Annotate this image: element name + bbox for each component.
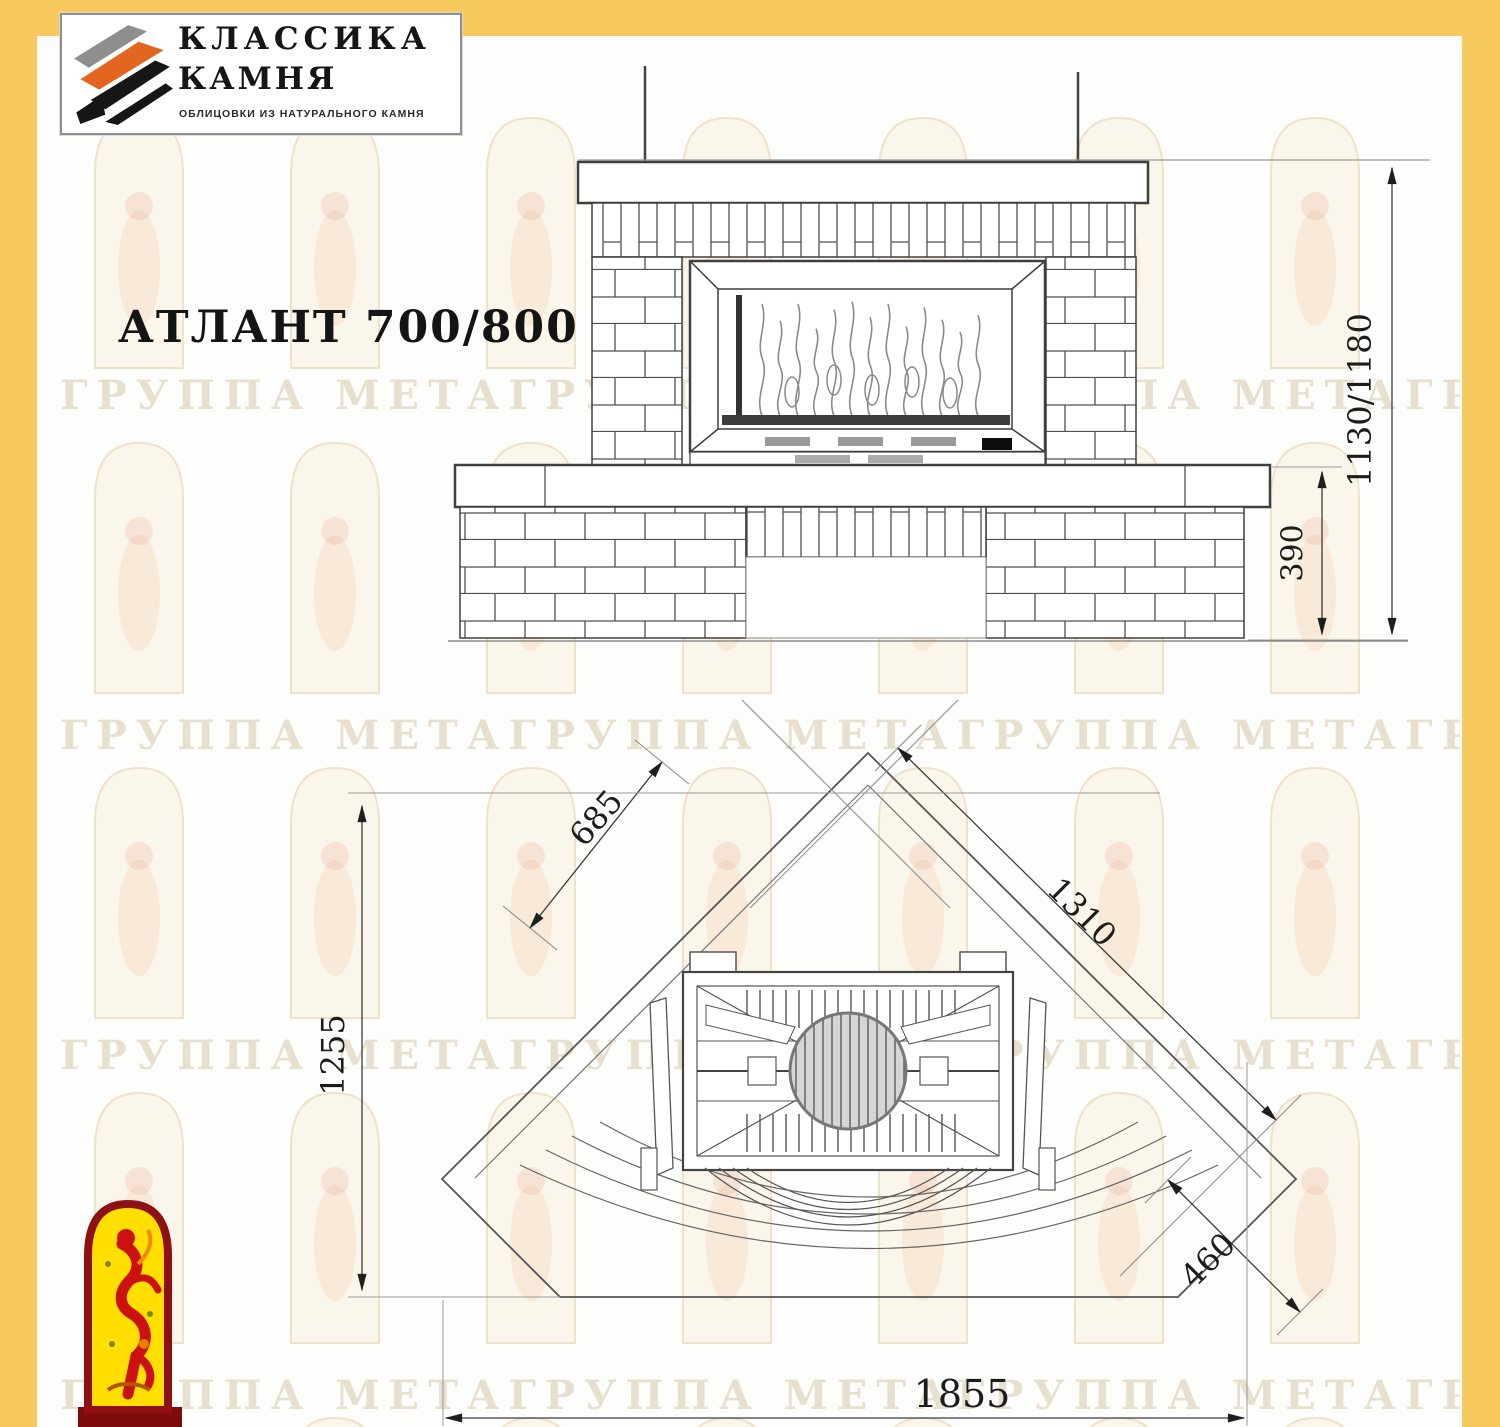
mascot-emblem-icon [78, 1194, 182, 1427]
company-logo: КЛАССИКА КАМНЯ ОБЛИЦОВКИ ИЗ НАТУРАЛЬНОГО… [60, 13, 462, 135]
dim-label-overall-width: 1855 [914, 1372, 1011, 1416]
logo-name-line1: КЛАССИКА [178, 21, 431, 57]
logo-name-line2: КАМНЯ [178, 61, 337, 97]
spec-sheet-page: ГРУППА МЕТАГРУППА МЕТАГРУППА МЕТАГРУППА … [0, 0, 1500, 1427]
dim-label-overall-height: 1130/1180 [1341, 313, 1379, 487]
logo-stripes-icon [70, 21, 174, 125]
page-title: АТЛАНТ 700/800 [118, 302, 579, 353]
dim-label-base-height: 390 [1276, 524, 1311, 581]
fireplace-technical-drawing [0, 0, 1500, 1427]
cassette-plan [641, 952, 1055, 1225]
plan-view [348, 700, 1323, 1426]
dim-label-depth: 1255 [314, 1014, 352, 1095]
logo-tagline: ОБЛИЦОВКИ ИЗ НАТУРАЛЬНОГО КАМНЯ [179, 108, 425, 120]
